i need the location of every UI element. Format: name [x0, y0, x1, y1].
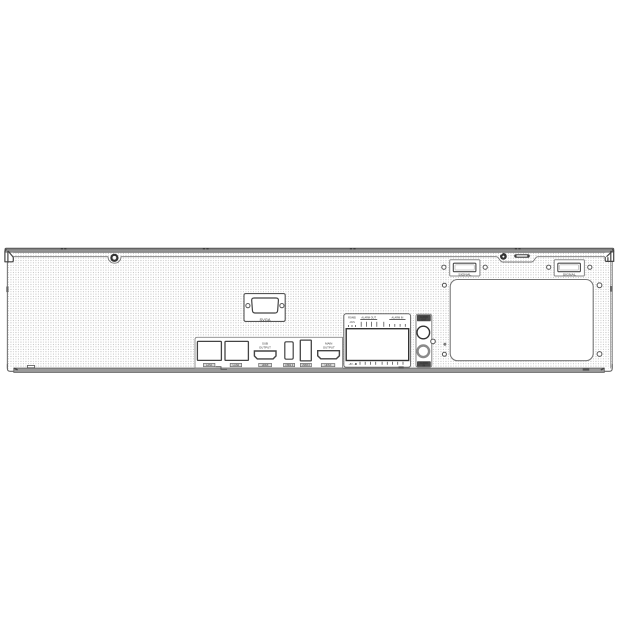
svg-text:SVGA: SVGA	[260, 318, 272, 322]
svg-text:RS485: RS485	[348, 316, 356, 319]
svg-text:ALARM OUT: ALARM OUT	[361, 316, 376, 319]
svg-text:+5V▾: +5V▾	[349, 321, 354, 324]
svg-text:USB3.0: USB3.0	[302, 364, 311, 367]
svg-text:ALARM IN: ALARM IN	[391, 316, 403, 319]
svg-text:SIGNAL: SIGNAL	[458, 272, 472, 276]
svg-text:HDMI: HDMI	[262, 363, 269, 367]
svg-text:USB2.0: USB2.0	[285, 364, 294, 367]
svg-text:LAN2: LAN2	[233, 363, 240, 367]
svg-text:HDMI: HDMI	[325, 363, 332, 367]
svg-text:OUTPUT: OUTPUT	[259, 345, 271, 349]
svg-text:LAN1: LAN1	[206, 363, 213, 367]
svg-text:OUTPUT: OUTPUT	[323, 345, 335, 349]
svg-text:OUT: OUT	[421, 319, 427, 322]
svg-text:SIGNAL: SIGNAL	[563, 272, 577, 276]
svg-text:+5V→: +5V→	[348, 363, 355, 366]
svg-text:IN: IN	[423, 365, 426, 368]
